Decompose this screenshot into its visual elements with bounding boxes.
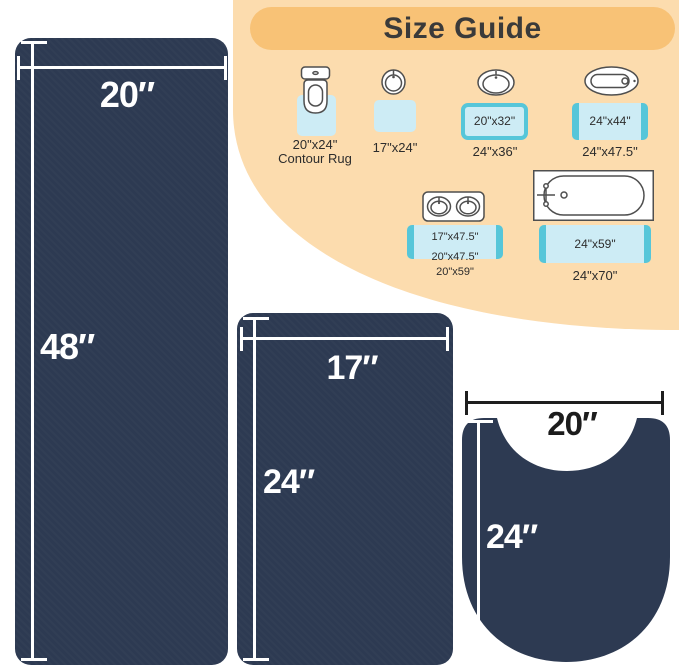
medium-height-label: 24″ [263, 463, 314, 502]
size-guide-header: Size Guide [250, 7, 675, 50]
runner-height-line [31, 41, 34, 661]
guide-rug-size-label: 24"x44" [572, 114, 648, 128]
runner-width-label: 20″ [62, 74, 192, 116]
size-guide-infographic: Size Guide 20"x24" Contour Rug 17"x24" 2… [0, 0, 679, 669]
size-guide-title: Size Guide [383, 12, 541, 46]
toilet-icon [300, 66, 331, 114]
guide-item-label: 24"x70" [539, 268, 651, 283]
guide-item-sublabel: Contour Rug [266, 151, 364, 166]
guide-item-label: 20"x24" [272, 137, 358, 152]
contour-width-label: 20″ [512, 405, 632, 443]
guide-item-label: 20"x59" [407, 266, 503, 278]
oval-sink-icon [477, 69, 515, 96]
guide-item-label: 24"x36" [466, 144, 524, 159]
medium-width-line [240, 337, 449, 340]
guide-rug-size-label-2: 20"x47.5" [407, 251, 503, 263]
runner-width-line [17, 66, 227, 69]
guide-rug-size-label: 24"x59" [539, 237, 651, 251]
guide-rug-size-label: 17"x47.5" [407, 231, 503, 243]
guide-item-label: 17"x24" [353, 140, 437, 155]
runner-height-label: 48″ [40, 326, 94, 368]
double-sink-icon [422, 191, 485, 222]
contour-height-line [477, 420, 480, 620]
round-sink-icon [381, 68, 406, 95]
medium-height-line [253, 317, 256, 661]
guide-item-label: 24"x47.5" [574, 144, 646, 159]
small-tub-icon [584, 66, 639, 96]
guide-rug-size-label: 20"x32" [461, 114, 528, 128]
contour-height-label: 24″ [486, 518, 537, 557]
medium-width-label: 17″ [290, 349, 414, 388]
guide-rug-17x24 [374, 100, 416, 132]
contour-width-line [465, 401, 664, 404]
bathtub-icon [533, 170, 654, 221]
